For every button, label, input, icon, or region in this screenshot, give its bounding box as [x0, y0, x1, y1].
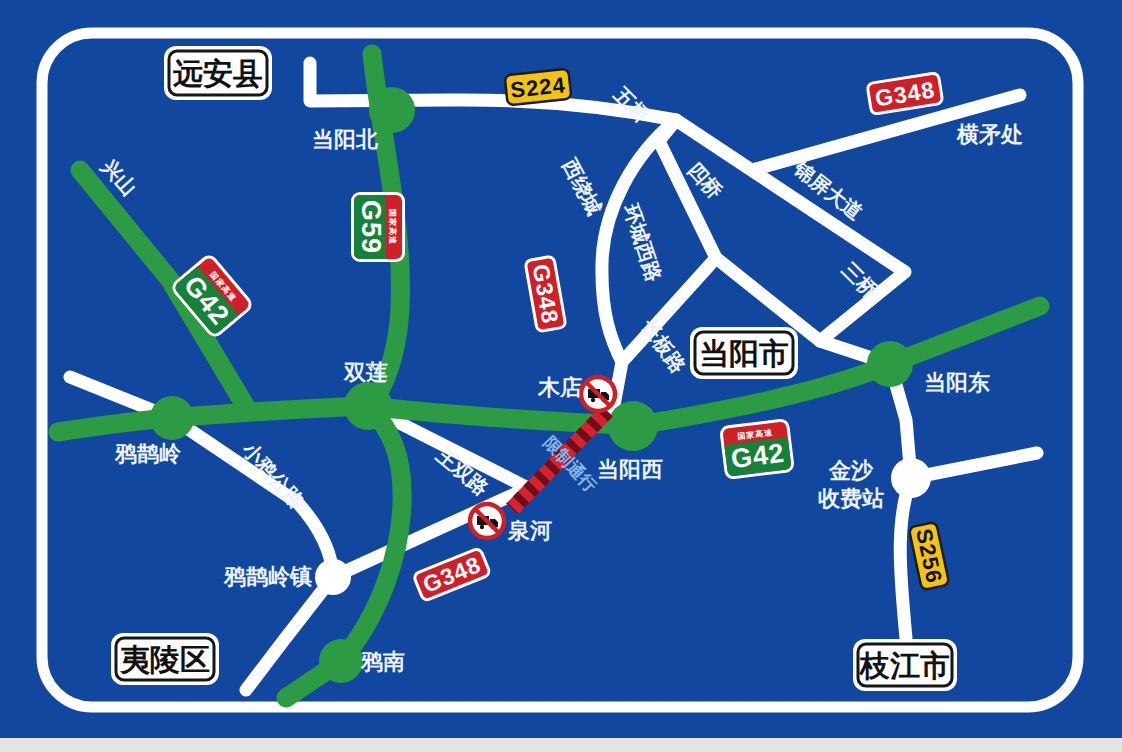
- label-dangyang-north: 当阳北: [312, 127, 379, 152]
- label-quanhe: 泉河: [507, 518, 552, 543]
- junction-jinsha-toll: [891, 458, 931, 498]
- junction-shuanglian: [344, 382, 392, 430]
- label-dangyang-west: 当阳西: [597, 457, 663, 482]
- junction-dangyang-east: [867, 341, 913, 387]
- map-canvas: S224 G348 G348 G348 S256 国家高速 G59 国家高速 G…: [0, 0, 1122, 752]
- g59-shield-code: G59: [356, 200, 386, 254]
- area-box-yiling-text: 夷陵区: [119, 643, 210, 676]
- label-yaque-ridge: 鸦鹊岭: [114, 441, 182, 466]
- no-entry-icon: [581, 377, 615, 411]
- area-box-yiling-district: 夷陵区: [111, 633, 219, 685]
- label-hengmaochu: 横矛处: [956, 122, 1023, 147]
- no-entry-icon: [470, 504, 504, 538]
- s224-provincial-shield: S224: [505, 69, 572, 106]
- road-map-sign: S224 G348 G348 G348 S256 国家高速 G59 国家高速 G…: [0, 0, 1122, 752]
- g59-shield-band: 国家高速: [388, 209, 398, 245]
- g59-expressway-shield: 国家高速 G59: [351, 192, 405, 262]
- junction-yaque-ridge: [150, 396, 194, 440]
- area-box-yuanan-text: 远安县: [172, 57, 263, 90]
- photo-edge-strip: [0, 738, 1122, 752]
- junction-yaque-ridge-town: [315, 559, 351, 595]
- area-box-zhijiang-text: 枝江市: [858, 649, 950, 682]
- junction-dangyang-west: [608, 401, 658, 451]
- label-dangyang-east: 当阳东: [924, 370, 990, 395]
- area-box-zhijiang-city: 枝江市: [853, 639, 957, 691]
- label-jinsha-toll-line2: 收费站: [818, 486, 884, 511]
- label-mudian: 木店: [537, 375, 582, 400]
- area-box-dangyang-text: 当阳市: [699, 337, 789, 370]
- label-shuanglian: 双莲: [343, 360, 388, 385]
- area-box-yuanan-county: 远安县: [164, 46, 272, 100]
- g42-mid-expressway-shield: 国家高速 G42: [719, 418, 795, 480]
- area-box-dangyang-city: 当阳市: [690, 327, 798, 379]
- label-yanan: 鸦南: [360, 649, 405, 674]
- label-yaque-ridge-town: 鸦鹊岭镇: [223, 564, 312, 589]
- label-jinsha-toll-line1: 金沙: [828, 458, 874, 483]
- junction-yanan: [319, 639, 363, 683]
